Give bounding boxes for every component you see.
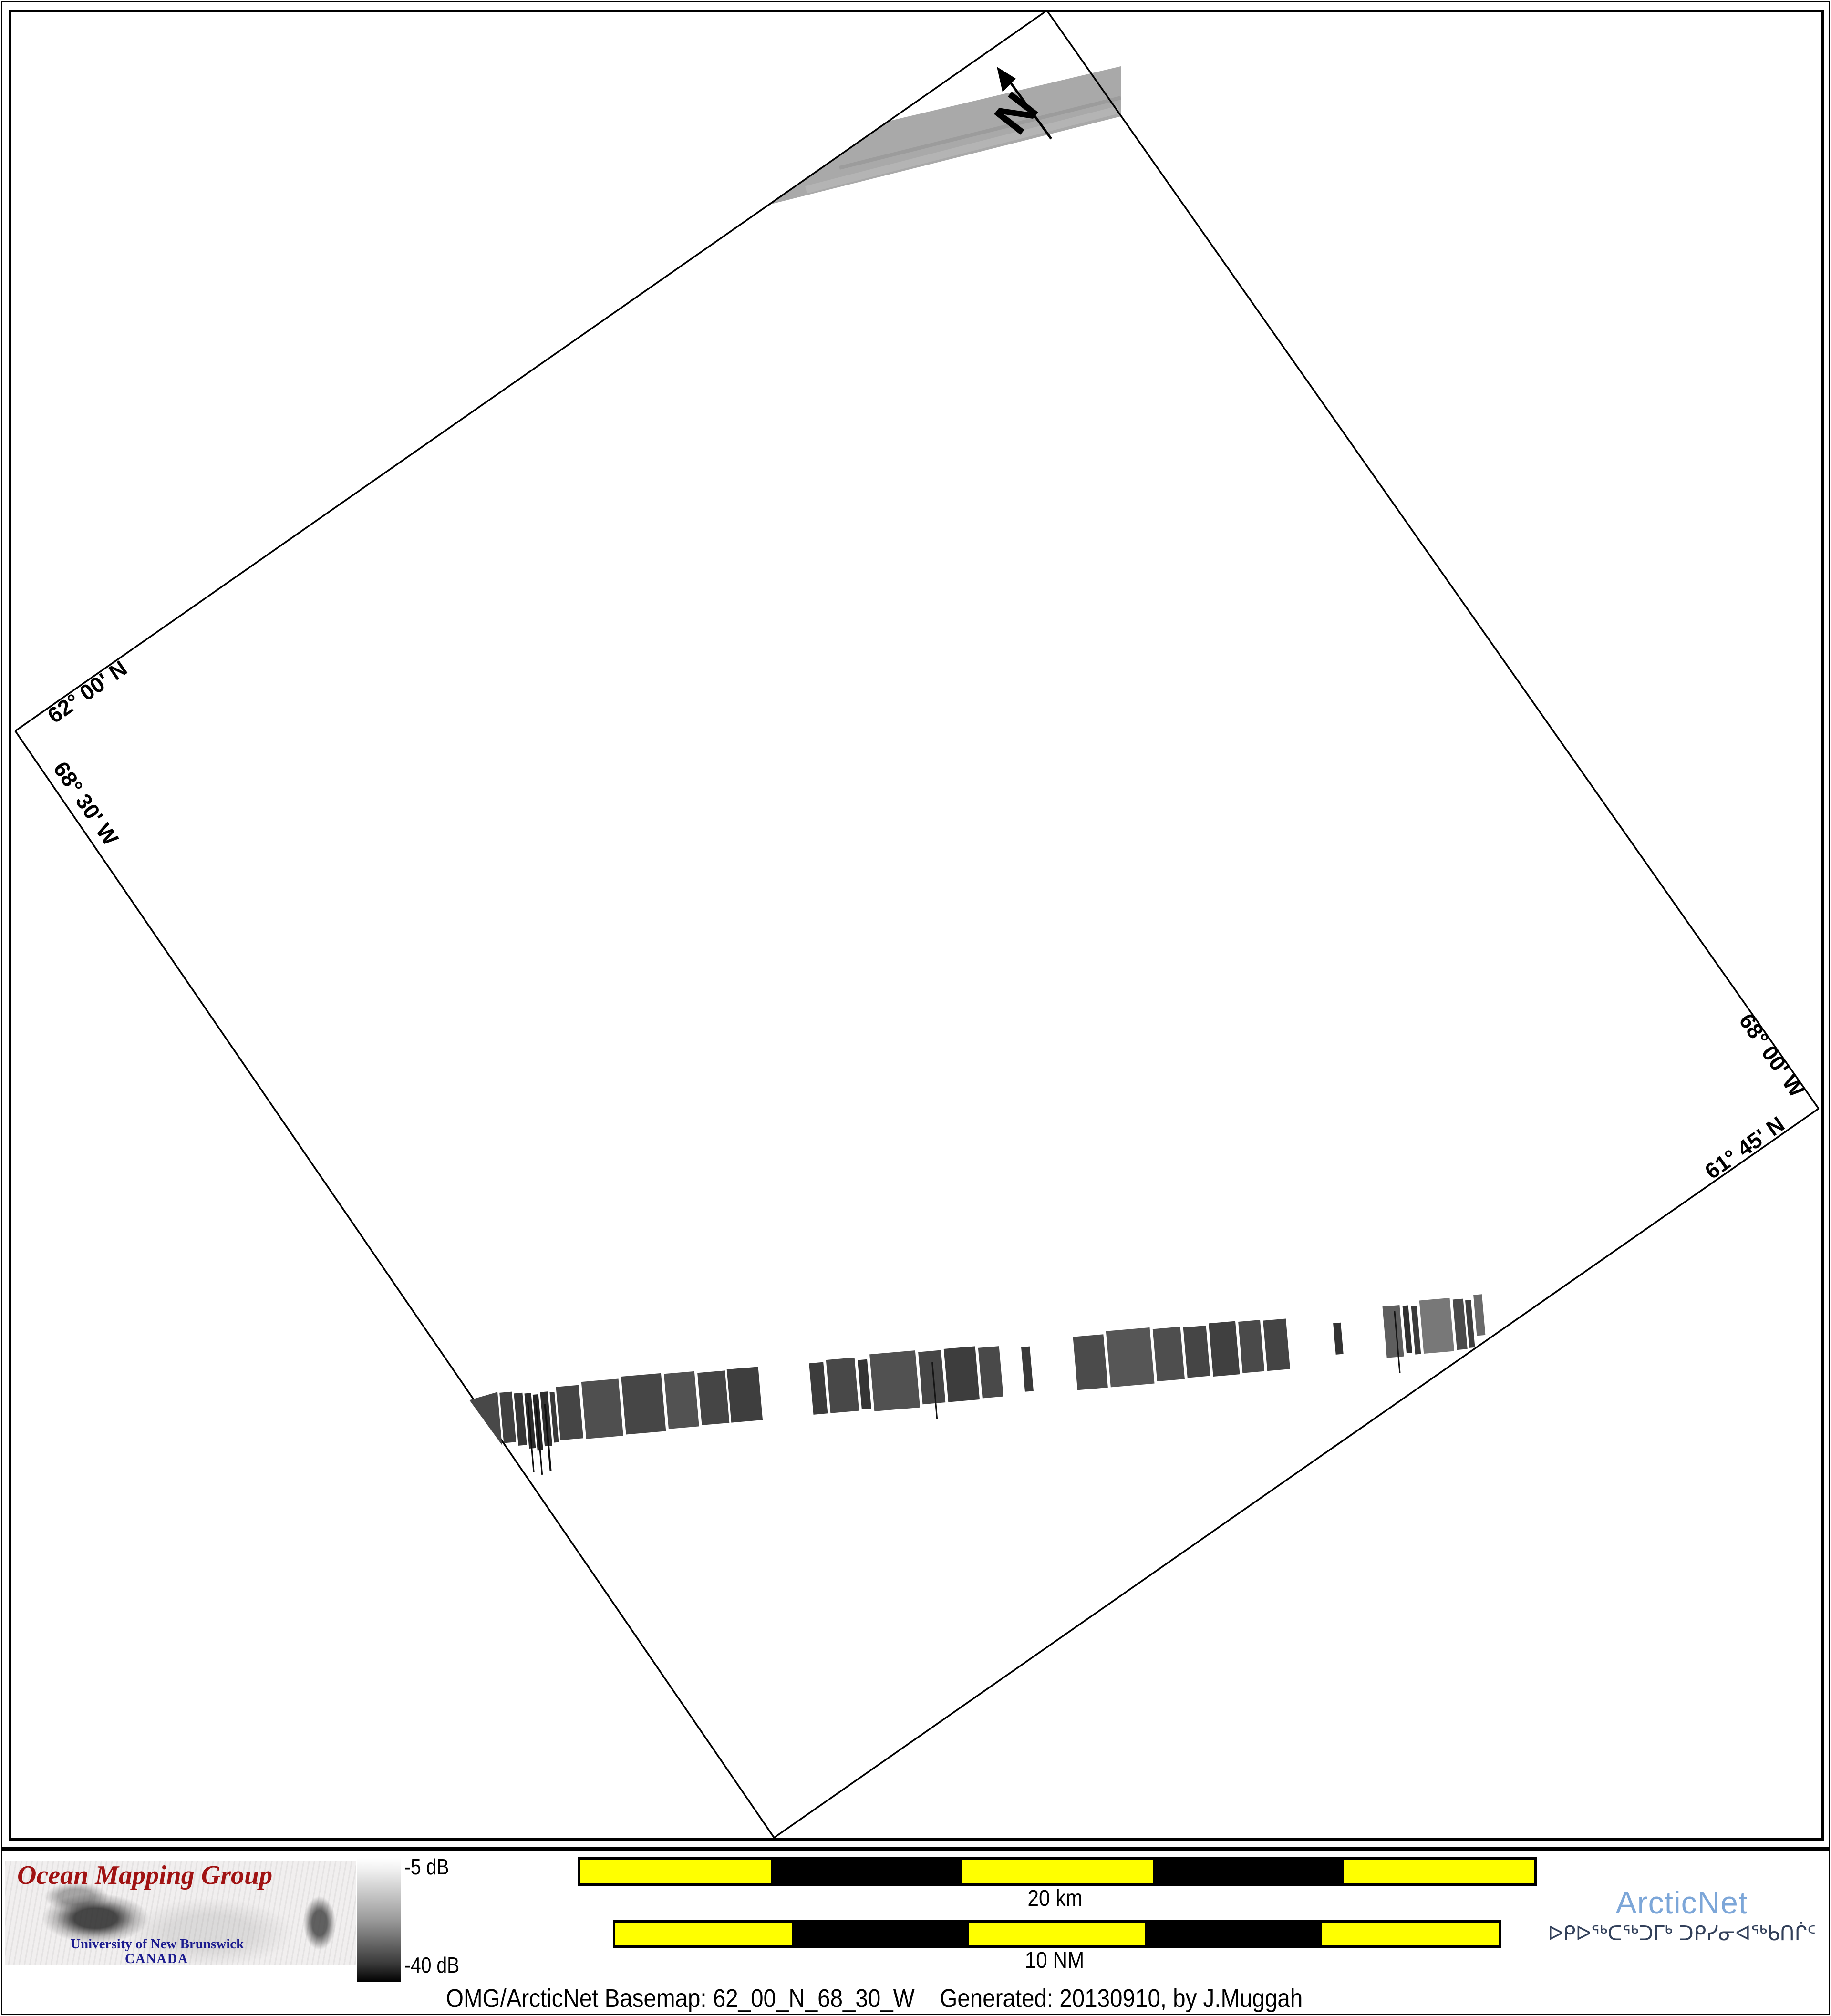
sonar-patch xyxy=(1153,1327,1185,1381)
basemap-caption: OMG/ArcticNet Basemap: 62_00_N_68_30_W G… xyxy=(446,1984,1303,2013)
sonar-patch xyxy=(1382,1305,1404,1358)
sonar-patch xyxy=(556,1385,583,1440)
footer-separator-line xyxy=(1,1847,1830,1851)
scalebar-segment xyxy=(771,1860,962,1883)
sonar-patch xyxy=(1238,1320,1264,1373)
graticule-label-longitude-west: 68° 30' W xyxy=(49,757,124,850)
sonar-patch xyxy=(944,1346,980,1402)
scalebar-km-label: 20 km xyxy=(635,1885,1475,1912)
sonar-patch xyxy=(1021,1347,1034,1392)
scalebar-segment xyxy=(1344,1860,1534,1883)
sonar-patch xyxy=(664,1371,699,1429)
sonar-patch xyxy=(727,1367,763,1422)
sonar-patch xyxy=(514,1393,527,1446)
sonar-patch xyxy=(1073,1334,1108,1390)
omg-logo-country: CANADA xyxy=(125,1952,188,1965)
sonar-patch xyxy=(1473,1294,1485,1336)
sonar-patch xyxy=(697,1370,729,1425)
sonar-patch xyxy=(1106,1327,1155,1387)
omg-logo-university: University of New Brunswick xyxy=(71,1936,244,1952)
scalebar-segment xyxy=(969,1923,1145,1945)
sonar-swath-top xyxy=(769,66,1121,205)
sonar-patch xyxy=(1183,1326,1210,1378)
sonar-patch xyxy=(621,1373,666,1435)
scalebar-nm xyxy=(613,1920,1501,1948)
sonar-patch xyxy=(1403,1305,1412,1353)
sonar-patch xyxy=(1453,1299,1468,1350)
sonar-patch xyxy=(499,1392,516,1443)
graticule-label-latitude-east: 61° 45' N xyxy=(1700,1111,1789,1184)
arcticnet-logo: ArcticNet ᐅᑭᐅᖅᑕᖅᑐᒥᒃ ᑐᑭᓯᓂᐊᖅᑲᑎᒌᑦ xyxy=(1533,1884,1831,1945)
scalebar-km xyxy=(578,1857,1537,1886)
arcticnet-logo-name: ArcticNet xyxy=(1533,1884,1831,1921)
sonar-patch xyxy=(918,1350,945,1405)
backscatter-colorbar xyxy=(357,1858,401,1982)
sonar-patch-wedge xyxy=(469,1392,502,1448)
graticule-label-latitude-west: 62° 00' N xyxy=(43,656,132,728)
arcticnet-logo-inuktitut-tagline: ᐅᑭᐅᖅᑕᖅᑐᒥᒃ ᑐᑭᓯᓂᐊᖅᑲᑎᒌᑦ xyxy=(1533,1922,1831,1945)
sonar-patch xyxy=(809,1362,828,1415)
neatline-bottom-right-edge xyxy=(774,1109,1819,1838)
neatline-top-left-edge xyxy=(15,10,1047,731)
scalebar-segment xyxy=(962,1860,1153,1883)
sonar-track-strip xyxy=(468,1294,1490,1481)
graticule-frame xyxy=(15,10,1819,1838)
scalebar-segment xyxy=(615,1923,792,1945)
sonar-patch xyxy=(869,1350,920,1411)
sonar-patch xyxy=(1263,1319,1290,1371)
scalebar-segment xyxy=(1322,1923,1499,1945)
scalebar-segment xyxy=(792,1923,968,1945)
colorbar-max-label: -5 dB xyxy=(404,1854,449,1880)
scalebar-segment xyxy=(1153,1860,1344,1883)
sonar-patch xyxy=(1411,1306,1421,1355)
sonar-patch xyxy=(581,1378,623,1439)
sonar-patch xyxy=(826,1358,859,1413)
sonar-patch xyxy=(858,1359,871,1409)
graticule-label-longitude-east: 68° 00' W xyxy=(1734,1009,1810,1102)
neatline-top-right-edge xyxy=(1047,10,1819,1109)
sonar-patch xyxy=(978,1346,1003,1398)
sonar-patch xyxy=(1419,1298,1454,1354)
map-canvas: 62° 00' N 68° 30' W 68° 00' W 61° 45' N … xyxy=(0,0,1831,2016)
omg-logo-title: Ocean Mapping Group xyxy=(17,1861,272,1891)
omg-logo: Ocean Mapping Group University of New Br… xyxy=(5,1861,356,1965)
sonar-patch xyxy=(1209,1321,1240,1377)
scalebar-segment xyxy=(1145,1923,1322,1945)
scalebar-nm-label: 10 NM xyxy=(666,1947,1443,1974)
sonar-patch xyxy=(1333,1323,1344,1355)
basemap-page: 62° 00' N 68° 30' W 68° 00' W 61° 45' N … xyxy=(0,0,1831,2016)
neatline-bottom-left-edge xyxy=(15,731,774,1838)
scalebar-segment xyxy=(580,1860,771,1883)
colorbar-min-label: -40 dB xyxy=(404,1952,459,1978)
